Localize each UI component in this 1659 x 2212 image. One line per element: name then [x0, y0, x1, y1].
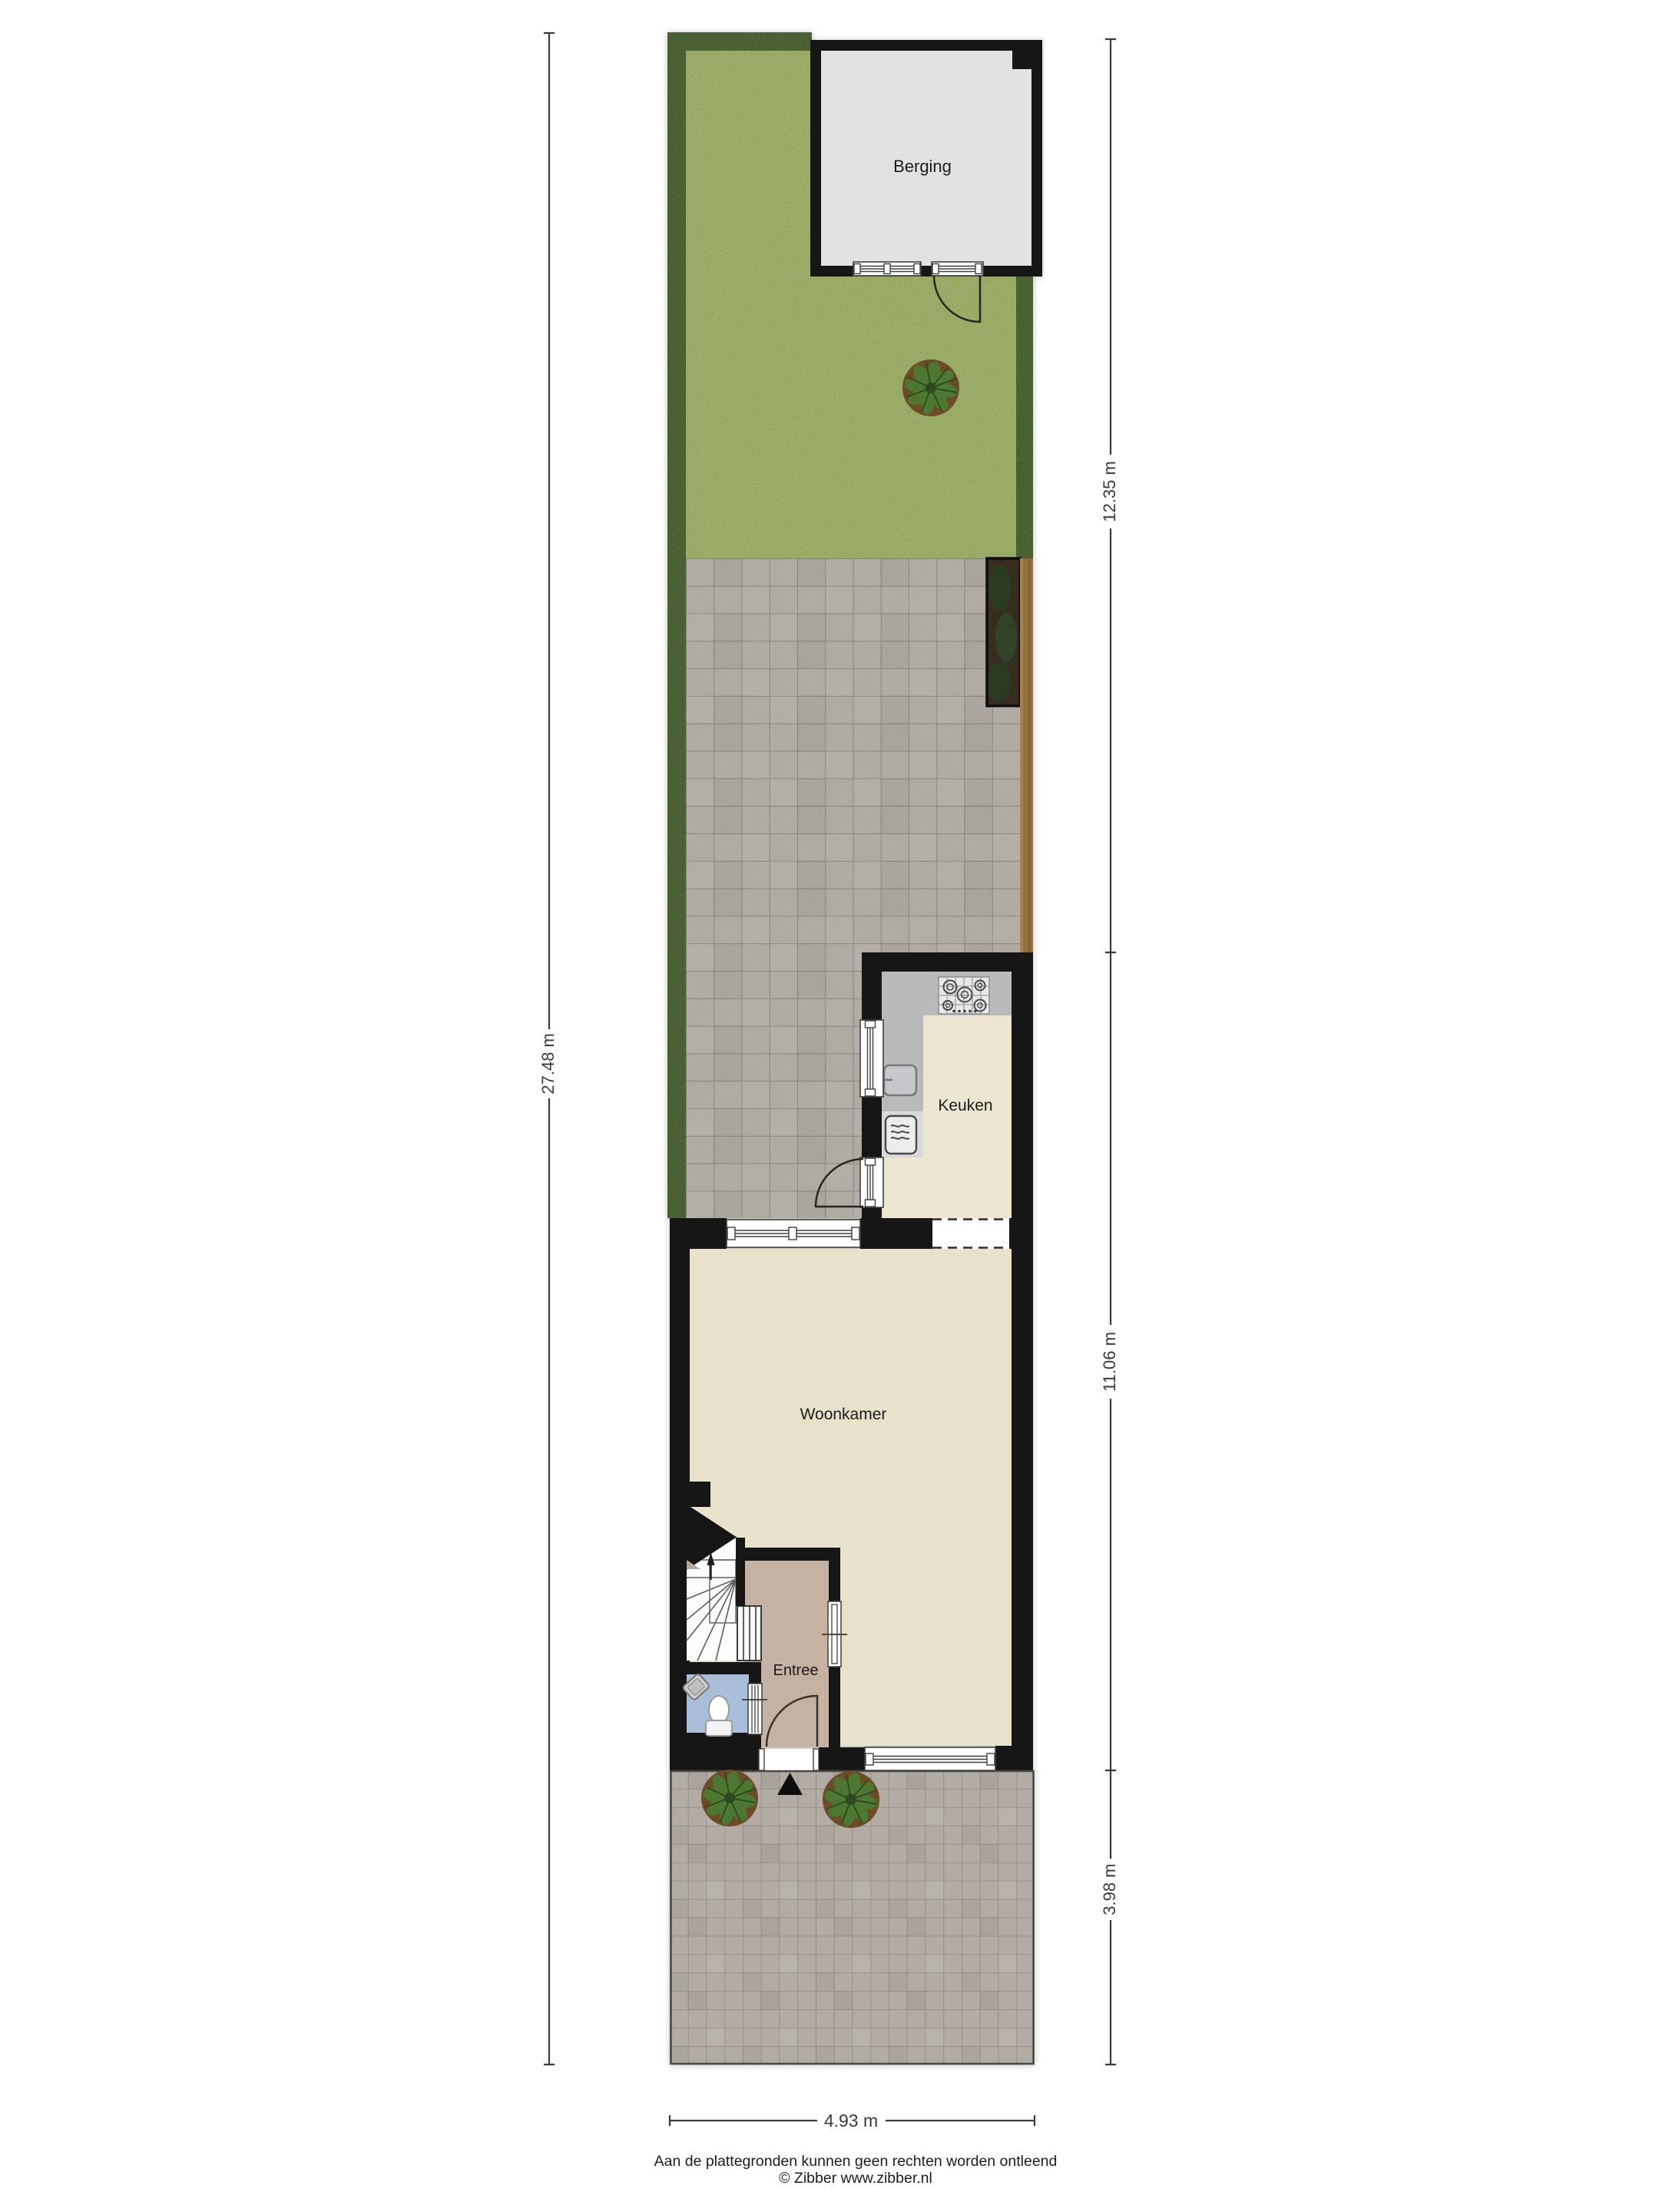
svg-text:4.93 m: 4.93 m: [824, 2111, 878, 2131]
svg-text:11.06 m: 11.06 m: [1100, 1332, 1119, 1392]
svg-text:© Zibber www.zibber.nl: © Zibber www.zibber.nl: [779, 2170, 932, 2187]
svg-text:Berging: Berging: [893, 157, 952, 176]
svg-text:Keuken: Keuken: [938, 1097, 992, 1114]
svg-text:3.98 m: 3.98 m: [1100, 1863, 1119, 1915]
svg-text:Entree: Entree: [773, 1662, 819, 1679]
svg-text:27.48 m: 27.48 m: [538, 1033, 558, 1094]
svg-text:Aan de plattegronden kunnen ge: Aan de plattegronden kunnen geen rechten…: [654, 2153, 1058, 2170]
svg-text:Woonkamer: Woonkamer: [800, 1406, 887, 1423]
svg-text:12.35 m: 12.35 m: [1100, 461, 1119, 522]
